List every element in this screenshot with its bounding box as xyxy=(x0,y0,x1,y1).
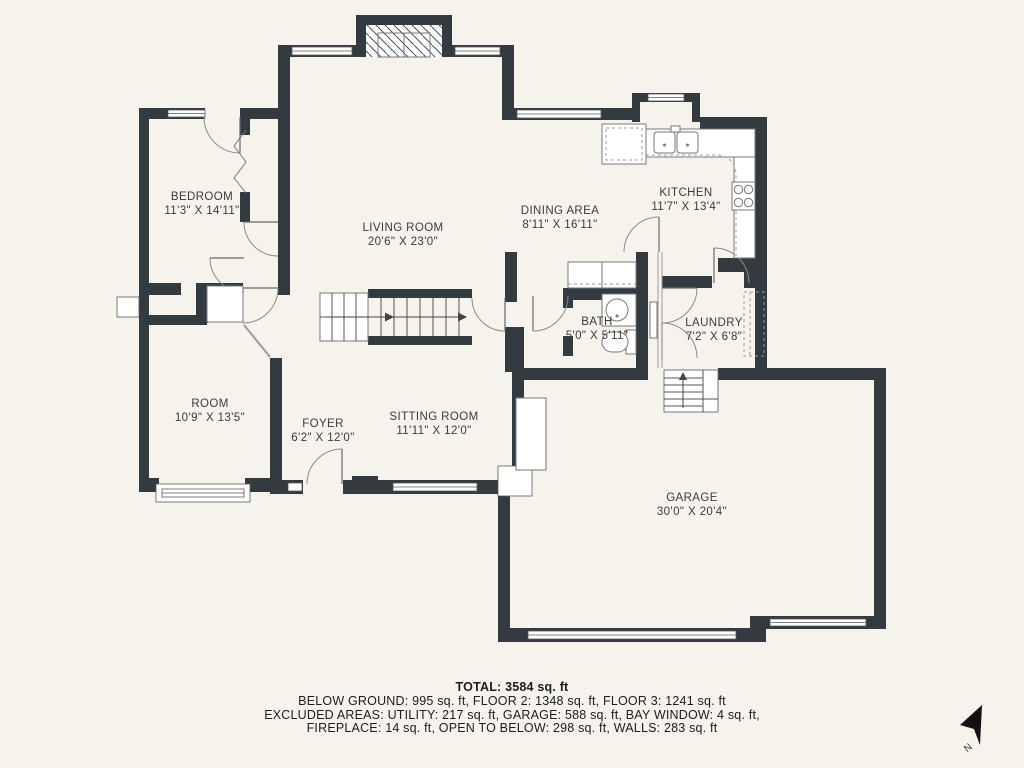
refrigerator xyxy=(602,124,646,164)
doorway xyxy=(303,479,343,495)
north-arrow: N xyxy=(960,705,982,755)
room-label-garage: GARAGE 30'0" X 20'4" xyxy=(657,492,727,518)
hall-corridor xyxy=(650,252,662,368)
hall-cabinet xyxy=(568,262,636,288)
svg-text:KITCHEN: KITCHEN xyxy=(659,187,712,199)
window xyxy=(168,110,205,117)
window xyxy=(648,94,684,101)
wall-segment xyxy=(498,494,510,634)
wall-segment xyxy=(240,192,250,222)
wall-segment xyxy=(755,117,767,262)
room-label-dining: DINING AREA 8'11" X 16'11" xyxy=(521,205,600,231)
svg-text:SITTING ROOM: SITTING ROOM xyxy=(389,411,478,423)
svg-text:30'0" X 20'4": 30'0" X 20'4" xyxy=(657,506,727,518)
door-swing xyxy=(243,288,278,323)
room-labels: BEDROOM 11'3" X 14'11" LIVING ROOM 20'6"… xyxy=(164,187,742,518)
closet xyxy=(207,286,243,322)
door-swing xyxy=(244,222,278,256)
doorway xyxy=(205,107,240,120)
wall-segment xyxy=(368,336,472,345)
summary-excluded-1: EXCLUDED AREAS: UTILITY: 217 sq. ft, GAR… xyxy=(264,708,760,722)
wall-segment xyxy=(512,368,636,380)
svg-text:GARAGE: GARAGE xyxy=(666,492,718,504)
summary-floors: BELOW GROUND: 995 sq. ft, FLOOR 2: 1348 … xyxy=(298,694,726,708)
garage-storage xyxy=(516,398,546,470)
wall-segment xyxy=(636,252,648,380)
svg-text:BEDROOM: BEDROOM xyxy=(171,191,233,203)
room-label-sitting: SITTING ROOM 11'11" X 12'0" xyxy=(389,411,478,437)
wall-segment xyxy=(352,476,378,494)
wall-segment xyxy=(356,15,452,25)
svg-text:20'6" X 23'0": 20'6" X 23'0" xyxy=(368,236,438,248)
garage-door xyxy=(528,631,736,639)
svg-text:11'11" X 12'0": 11'11" X 12'0" xyxy=(396,425,471,437)
wall-segment xyxy=(139,315,207,325)
room-label-kitchen: KITCHEN 11'7" X 13'4" xyxy=(651,187,720,213)
garage-door xyxy=(770,619,866,626)
stove xyxy=(732,182,755,210)
wall-segment xyxy=(874,368,886,629)
door-swing xyxy=(624,217,659,252)
stairs-garage xyxy=(664,370,718,412)
stairs-main xyxy=(320,293,467,341)
wall-segment xyxy=(718,368,886,380)
svg-text:5'0" X 5'11": 5'0" X 5'11" xyxy=(566,330,629,342)
window xyxy=(455,47,500,55)
bay-window xyxy=(156,484,250,502)
window xyxy=(288,483,302,491)
wall-segment xyxy=(139,108,149,490)
wall-segment xyxy=(139,283,181,295)
svg-text:8'11" X 16'11": 8'11" X 16'11" xyxy=(522,219,597,231)
window-seat xyxy=(117,297,139,317)
wall-segment xyxy=(692,93,700,122)
wall-segment xyxy=(632,93,640,122)
wall-segment xyxy=(368,289,472,298)
walls xyxy=(139,15,886,642)
floor-plan-page: BEDROOM 11'3" X 14'11" LIVING ROOM 20'6"… xyxy=(0,0,1024,768)
svg-text:11'7" X 13'4": 11'7" X 13'4" xyxy=(651,201,720,213)
summary-total: TOTAL: 3584 sq. ft xyxy=(456,680,570,694)
door-swing xyxy=(307,449,342,484)
room-label-foyer: FOYER 6'2" X 12'0" xyxy=(291,418,354,444)
svg-text:7'2" X 6'8": 7'2" X 6'8" xyxy=(686,331,743,343)
compass-arrow-icon xyxy=(960,705,982,745)
door-swing xyxy=(533,296,568,331)
room-label-laundry: LAUNDRY 7'2" X 6'8" xyxy=(685,317,743,343)
fireplace xyxy=(366,25,442,57)
window xyxy=(517,110,601,118)
room-label-living: LIVING ROOM 20'6" X 23'0" xyxy=(362,222,443,248)
room-label-room: ROOM 10'9" X 13'5" xyxy=(175,398,245,424)
door-swing xyxy=(472,298,505,331)
window xyxy=(393,483,477,491)
svg-text:FOYER: FOYER xyxy=(302,418,344,430)
pocket-door xyxy=(650,302,657,338)
svg-text:BATH: BATH xyxy=(581,316,612,328)
svg-text:ROOM: ROOM xyxy=(191,398,228,410)
svg-text:LIVING ROOM: LIVING ROOM xyxy=(362,222,443,234)
window xyxy=(292,47,352,55)
floor-plan: BEDROOM 11'3" X 14'11" LIVING ROOM 20'6"… xyxy=(0,0,1024,768)
wall-segment xyxy=(505,327,524,372)
wall-segment xyxy=(278,45,290,295)
svg-text:6'2" X 12'0": 6'2" X 12'0" xyxy=(291,432,354,444)
svg-text:11'3" X 14'11": 11'3" X 14'11" xyxy=(164,205,239,217)
wall-segment xyxy=(270,358,282,490)
area-summary: TOTAL: 3584 sq. ft BELOW GROUND: 995 sq.… xyxy=(264,680,760,735)
wall-segment xyxy=(505,252,517,302)
diagonal-wall xyxy=(244,325,270,357)
room-label-bedroom: BEDROOM 11'3" X 14'11" xyxy=(164,191,239,217)
svg-text:LAUNDRY: LAUNDRY xyxy=(685,317,743,329)
svg-text:10'9" X 13'5": 10'9" X 13'5" xyxy=(175,412,245,424)
summary-excluded-2: FIREPLACE: 14 sq. ft, OPEN TO BELOW: 298… xyxy=(307,721,718,735)
wall-segment xyxy=(662,276,712,288)
svg-text:DINING AREA: DINING AREA xyxy=(521,205,600,217)
wall-segment xyxy=(356,15,366,57)
wall-segment xyxy=(442,15,452,57)
north-label: N xyxy=(962,742,975,755)
